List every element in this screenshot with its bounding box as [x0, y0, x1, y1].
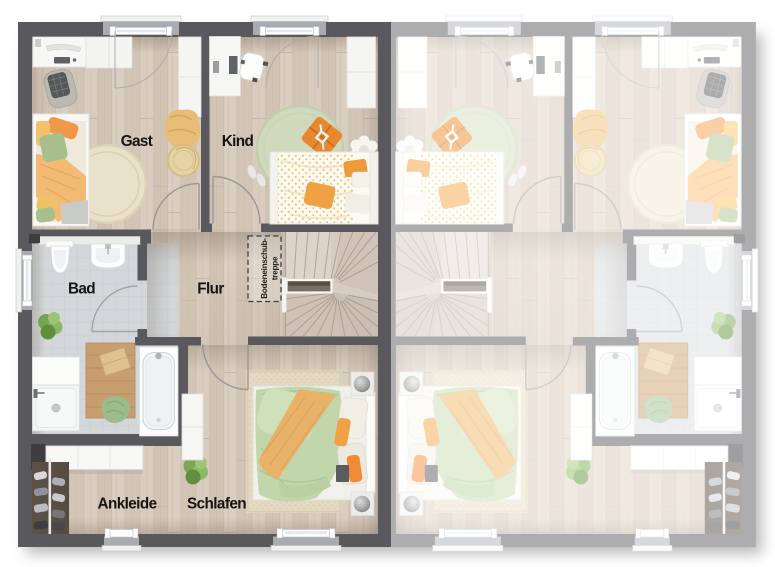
svg-text:Bodeneinschub-: Bodeneinschub-: [260, 238, 269, 299]
svg-text:Ankleide: Ankleide: [98, 496, 157, 513]
svg-text:Gast: Gast: [121, 133, 153, 150]
svg-text:treppe: treppe: [271, 256, 280, 280]
svg-text:Bad: Bad: [68, 281, 95, 298]
svg-text:Schlafen: Schlafen: [187, 496, 246, 513]
svg-text:Kind: Kind: [222, 133, 254, 150]
svg-text:Flur: Flur: [197, 281, 224, 298]
